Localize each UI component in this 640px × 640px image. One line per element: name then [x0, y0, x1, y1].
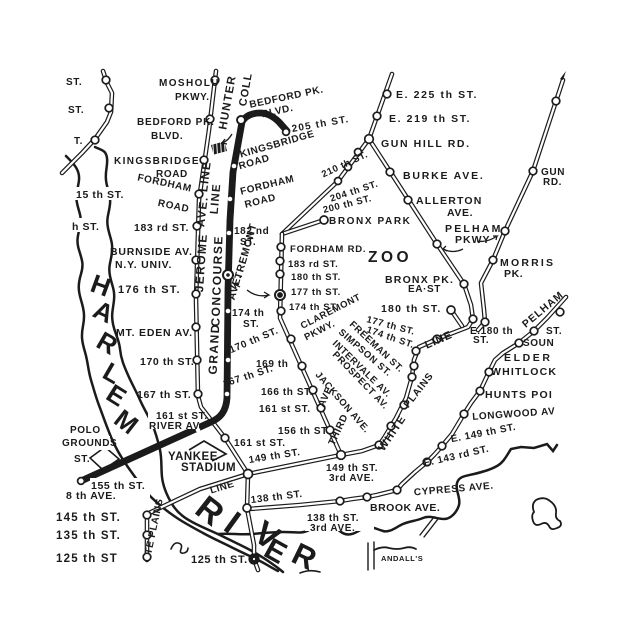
svg-text:167 th ST.: 167 th ST.	[137, 389, 191, 401]
svg-text:15 th ST.: 15 th ST.	[76, 189, 124, 201]
svg-text:GRAND: GRAND	[206, 323, 223, 375]
svg-text:h ST.: h ST.	[72, 221, 100, 233]
svg-text:125 th ST.: 125 th ST.	[191, 554, 248, 566]
svg-text:E. 225 th ST.: E. 225 th ST.	[396, 89, 478, 101]
svg-text:ALLERTON: ALLERTON	[416, 195, 483, 207]
svg-text:ZOO: ZOO	[368, 249, 412, 266]
svg-text:MT. EDEN AV.: MT. EDEN AV.	[116, 327, 193, 339]
svg-text:STADIUM: STADIUM	[181, 462, 236, 474]
svg-text:ST.: ST.	[473, 335, 489, 346]
svg-text:176 th ST.: 176 th ST.	[118, 284, 181, 296]
svg-text:BURKE AVE.: BURKE AVE.	[403, 170, 485, 182]
svg-text:169 th: 169 th	[256, 359, 289, 370]
svg-text:125 th ST: 125 th ST	[56, 553, 118, 565]
svg-text:ELDER: ELDER	[504, 352, 553, 364]
svg-text:GUN HILL RD.: GUN HILL RD.	[381, 138, 471, 150]
svg-text:RD.: RD.	[543, 177, 562, 188]
svg-text:GROUNDS: GROUNDS	[62, 438, 117, 449]
svg-text:PK.: PK.	[504, 268, 523, 280]
svg-text:BLVD.: BLVD.	[151, 131, 183, 142]
svg-text:EA·ST: EA·ST	[408, 284, 441, 295]
svg-text:183 rd ST.: 183 rd ST.	[134, 222, 189, 234]
svg-text:PKWY: PKWY	[455, 234, 491, 246]
svg-text:POLO: POLO	[70, 425, 101, 436]
svg-text:135 th ST.: 135 th ST.	[56, 530, 121, 542]
svg-text:161 st ST.: 161 st ST.	[259, 404, 311, 415]
svg-text:161 st ST.: 161 st ST.	[234, 438, 286, 449]
svg-text:166 th ST.: 166 th ST.	[261, 387, 313, 398]
svg-text:170 th ST.: 170 th ST.	[140, 356, 194, 368]
svg-text:ANDALL'S: ANDALL'S	[381, 554, 423, 563]
svg-text:8 th AVE.: 8 th AVE.	[66, 490, 116, 502]
svg-text:ST.: ST.	[546, 326, 562, 337]
svg-text:174 th: 174 th	[232, 308, 265, 319]
svg-text:T.: T.	[74, 136, 83, 147]
svg-text:WHITLOCK: WHITLOCK	[491, 366, 557, 378]
svg-text:KINGSBRIDGE: KINGSBRIDGE	[114, 156, 200, 167]
svg-text:FORDHAM RD.: FORDHAM RD.	[290, 244, 366, 255]
svg-text:BEDFORD PK.: BEDFORD PK.	[137, 117, 215, 128]
svg-text:ST.: ST.	[68, 105, 84, 116]
svg-text:N.Y. UNIV.: N.Y. UNIV.	[115, 259, 172, 271]
svg-text:3rd AVE.: 3rd AVE.	[329, 473, 374, 484]
svg-text:180 th ST.: 180 th ST.	[291, 272, 341, 283]
svg-text:MOSHOLU: MOSHOLU	[159, 78, 220, 89]
svg-text:180 th ST.: 180 th ST.	[381, 303, 441, 315]
svg-text:BROOK AVE.: BROOK AVE.	[370, 502, 440, 514]
svg-text:177 th ST.: 177 th ST.	[291, 287, 341, 298]
svg-text:E. 219 th ST.: E. 219 th ST.	[389, 113, 471, 125]
svg-text:HUNTS POI: HUNTS POI	[485, 389, 553, 401]
svg-text:BRONX PARK: BRONX PARK	[329, 216, 411, 227]
svg-text:183 rd ST.: 183 rd ST.	[288, 259, 338, 270]
svg-text:RIVER AV.: RIVER AV.	[149, 421, 202, 432]
svg-text:ST.: ST.	[66, 77, 82, 88]
svg-text:ST.: ST.	[243, 319, 259, 330]
svg-text:145 th ST.: 145 th ST.	[56, 512, 121, 524]
svg-text:156 th ST.: 156 th ST.	[278, 426, 330, 437]
svg-text:PKWY.: PKWY.	[175, 92, 210, 103]
svg-text:3rd AVE.: 3rd AVE.	[310, 523, 355, 534]
svg-text:ST.: ST.	[74, 454, 90, 465]
svg-text:BURNSIDE AV.: BURNSIDE AV.	[110, 246, 193, 258]
svg-text:SOUN: SOUN	[523, 338, 554, 349]
svg-text:AVE.: AVE.	[447, 207, 473, 219]
